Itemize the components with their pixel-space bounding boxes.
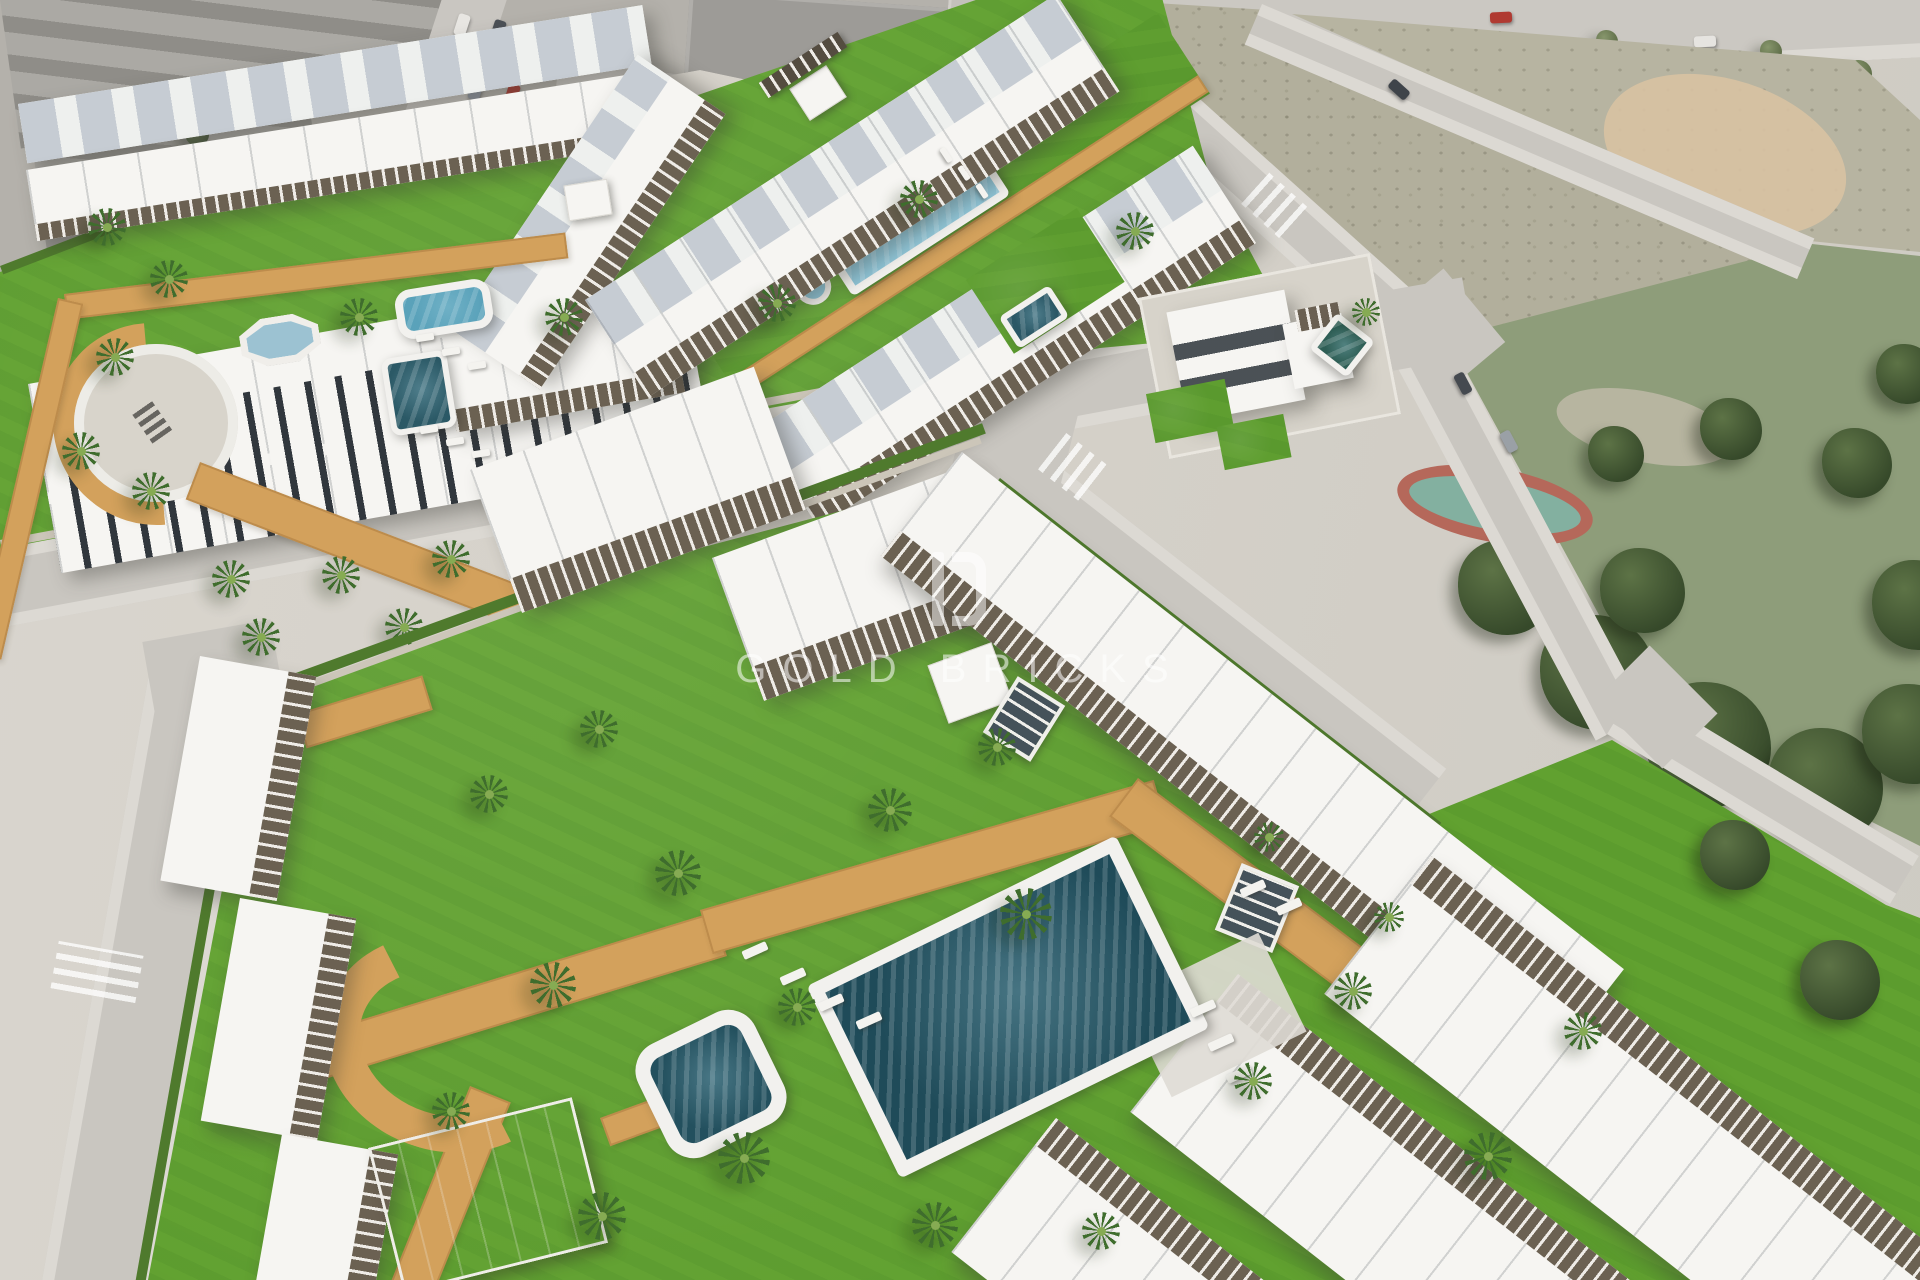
palm-tree: [212, 560, 250, 598]
park-tree: [1588, 426, 1644, 482]
palm-tree: [655, 850, 701, 896]
palm-tree: [150, 260, 188, 298]
palm-tree: [432, 1092, 470, 1130]
palm-tree: [1254, 822, 1284, 852]
palm-tree: [432, 540, 470, 578]
palm-tree: [1116, 212, 1154, 250]
palm-tree: [470, 775, 508, 813]
palm-tree: [580, 710, 618, 748]
palm-tree: [1334, 972, 1372, 1010]
palm-tree: [88, 208, 126, 246]
palm-tree: [778, 988, 816, 1026]
palm-tree: [978, 728, 1016, 766]
palm-tree: [242, 618, 280, 656]
park-tree: [1600, 548, 1685, 633]
splash-pool-water: [245, 318, 316, 362]
palm-tree: [1234, 1062, 1272, 1100]
palm-tree: [96, 338, 134, 376]
palm-tree: [545, 298, 583, 336]
garden-tree: [1700, 820, 1770, 890]
palm-tree: [340, 298, 378, 336]
parked-car: [1694, 35, 1717, 47]
palm-tree: [1374, 902, 1404, 932]
pool-cabana: [563, 179, 612, 221]
palm-tree: [132, 472, 170, 510]
palm-tree: [578, 1192, 626, 1240]
palm-tree: [1564, 1012, 1602, 1050]
palm-tree: [530, 962, 576, 1008]
palm-tree: [758, 284, 796, 322]
community-pool: [380, 349, 457, 436]
palm-tree: [1082, 1212, 1120, 1250]
palm-tree: [1464, 1132, 1512, 1180]
garden-tree: [1800, 940, 1880, 1020]
palm-tree: [900, 180, 938, 218]
palm-tree: [868, 788, 912, 832]
palm-tree: [912, 1202, 958, 1248]
park-tree: [1822, 428, 1892, 498]
parked-car: [1490, 11, 1513, 23]
palm-tree: [62, 432, 100, 470]
palm-tree: [1352, 298, 1380, 326]
park-tree: [1700, 398, 1762, 460]
palm-tree: [718, 1132, 770, 1184]
palm-tree: [1000, 888, 1052, 940]
palm-tree: [322, 556, 360, 594]
aerial-render: GOLD BRICKS: [0, 0, 1920, 1280]
